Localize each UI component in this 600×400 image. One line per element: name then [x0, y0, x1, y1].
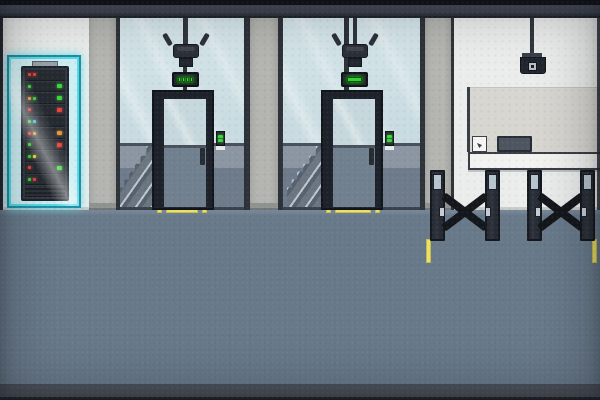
status-led-icon — [28, 97, 31, 100]
reader-led-icon — [218, 139, 223, 142]
card-reader[interactable] — [385, 131, 394, 146]
status-led-icon — [33, 132, 36, 135]
server-rack-rows — [25, 70, 65, 197]
indicator-bar — [347, 77, 362, 82]
ceiling-camera-lens — [348, 58, 362, 67]
photo-frame — [472, 136, 487, 152]
server-rack-cabinet[interactable] — [21, 66, 69, 201]
floor — [0, 210, 600, 400]
server-unit-row — [25, 105, 65, 116]
status-led-icon — [33, 178, 36, 181]
rotor-tip — [535, 207, 541, 217]
ceiling-camera-body — [342, 44, 368, 58]
status-led-icon — [28, 73, 31, 76]
status-led-icon — [57, 84, 62, 88]
pillar — [250, 18, 278, 210]
turnstile-2[interactable] — [527, 170, 597, 263]
status-led-icon — [57, 108, 62, 112]
camera-pole — [353, 18, 357, 44]
ceiling-beam — [0, 5, 600, 18]
rotor-tip — [439, 207, 445, 217]
turnstile-cap — [488, 174, 497, 190]
elevator-door-glass — [333, 99, 375, 207]
status-led-icon — [28, 85, 31, 88]
elevator-door-glass — [164, 99, 206, 207]
status-led-icon — [33, 97, 36, 100]
reception-back-panel — [470, 87, 600, 152]
turnstile-cap — [583, 174, 592, 190]
lobby-scene — [0, 0, 600, 400]
indicator-segment — [190, 77, 193, 82]
reader-led-icon — [387, 135, 392, 138]
status-led-icon — [28, 108, 31, 111]
reader-led-icon — [387, 139, 392, 142]
status-led-icon — [57, 166, 62, 170]
status-led-icon — [57, 143, 62, 147]
status-led-icon — [57, 96, 62, 100]
status-led-icon — [28, 120, 31, 123]
camera-lens-icon — [528, 62, 537, 71]
card-reader[interactable] — [216, 131, 225, 146]
rotor-tip — [581, 207, 587, 217]
elevator-indicator — [172, 72, 199, 87]
indicator-segment — [186, 77, 189, 82]
indicator-segment — [182, 77, 185, 82]
card-reader-slot — [385, 146, 394, 150]
ceiling-camera-reception — [518, 18, 548, 78]
turnstile-post — [580, 170, 595, 241]
status-led-icon — [28, 178, 31, 181]
status-led-icon — [28, 166, 31, 169]
elevator-indicator — [341, 72, 368, 87]
turnstile-rotor[interactable] — [537, 187, 585, 237]
turnstile-post — [485, 170, 500, 241]
camera-prong-icon — [199, 33, 210, 47]
camera-pole — [530, 18, 534, 55]
indicator-display — [345, 76, 364, 84]
status-led-icon — [33, 120, 36, 123]
reader-led-icon — [218, 135, 223, 138]
elevator-2 — [321, 18, 399, 210]
server-unit-row — [25, 93, 65, 104]
door-handle[interactable] — [369, 148, 374, 165]
camera-pole — [184, 18, 188, 44]
status-led-icon — [28, 155, 31, 158]
reception-monitor[interactable] — [497, 136, 532, 152]
status-led-icon — [33, 155, 36, 158]
server-unit-row — [25, 175, 65, 186]
elevator-door[interactable] — [152, 90, 214, 210]
turnstile-rotor[interactable] — [441, 187, 489, 237]
server-unit-row — [25, 70, 65, 81]
ceiling-camera-body — [173, 44, 199, 58]
photo-image — [477, 143, 482, 148]
camera-prong-icon — [162, 33, 173, 47]
indicator-segment — [178, 77, 181, 82]
card-reader-slot — [216, 146, 225, 150]
camera-prong-icon — [331, 33, 342, 47]
server-unit-row — [25, 128, 65, 139]
status-led-icon — [57, 131, 62, 135]
turnstile-1[interactable] — [430, 170, 500, 263]
status-led-icon — [28, 143, 31, 146]
status-led-icon — [28, 132, 31, 135]
ceiling-camera-lens — [179, 58, 193, 67]
status-led-icon — [33, 73, 36, 76]
screen-left-edge — [0, 18, 3, 210]
server-unit-row — [25, 117, 65, 128]
camera-prong-icon — [368, 33, 379, 47]
elevator-1 — [152, 18, 230, 210]
floor-dark-band — [0, 384, 600, 397]
pillar — [89, 18, 116, 210]
door-handle[interactable] — [200, 148, 205, 165]
server-unit-row — [25, 163, 65, 174]
server-unit-row — [25, 82, 65, 93]
elevator-door[interactable] — [321, 90, 383, 210]
reception-desk[interactable] — [468, 152, 600, 170]
server-unit-row — [25, 140, 65, 151]
rotor-tip — [485, 207, 491, 217]
server-unit-row — [25, 151, 65, 162]
server-vent-row — [25, 186, 65, 197]
server-rack[interactable] — [7, 55, 81, 208]
indicator-display — [176, 76, 195, 84]
